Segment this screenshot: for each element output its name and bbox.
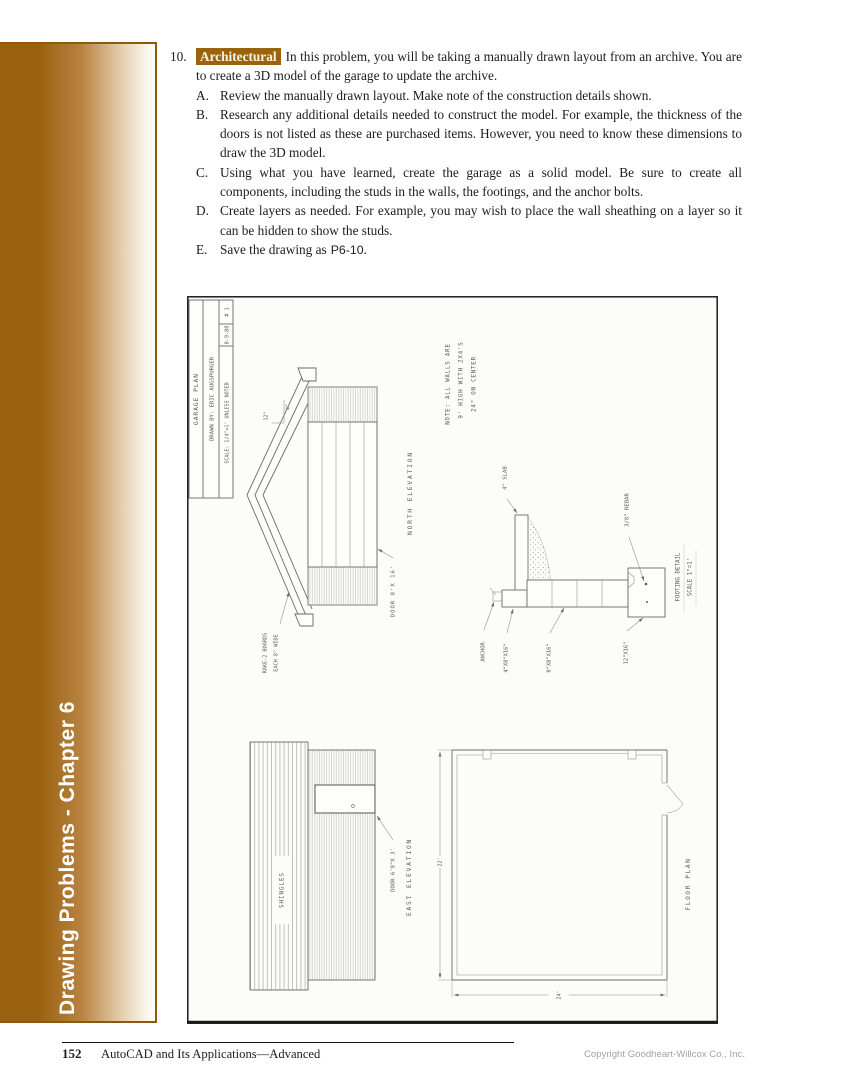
north-door-label: DOOR 8'X 16' xyxy=(391,565,397,617)
step-a: A. Review the manually drawn layout. Mak… xyxy=(196,86,742,105)
title-block-date: 8-9-88 xyxy=(225,326,231,345)
service-door-elevation xyxy=(315,785,375,813)
step-e-letter: E. xyxy=(196,240,220,260)
note-line1: NOTE: ALL WALLS ARE xyxy=(446,343,452,425)
sidebar-chapter-label: Drawing Problems - Chapter 6 xyxy=(56,685,80,1015)
footing-detail-scale: SCALE 1"=1' xyxy=(688,558,694,596)
title-block-scale: SCALE: 1/4"=1' UNLESS NOTED xyxy=(225,382,231,463)
floor-plan-dim-bottom: 24' xyxy=(557,990,563,999)
floor-plan-label: FLOOR PLAN xyxy=(685,858,692,911)
anchor-label: ANCHOR xyxy=(481,642,487,662)
garage-door-elevation xyxy=(308,422,377,567)
note-line2: 9' HIGH WITH 2X4'S xyxy=(459,341,465,418)
title-block-sheet: # 1 xyxy=(225,307,231,316)
shingles-label: SHINGLES xyxy=(280,872,286,908)
step-e-filename: P6-10 xyxy=(331,243,364,257)
step-c: C. Using what you have learned, create t… xyxy=(196,163,742,202)
east-elevation-label: EAST ELEVATION xyxy=(406,838,413,916)
step-e-text-before: Save the drawing as xyxy=(220,242,327,257)
pitch-rise-label: 4" xyxy=(286,404,292,410)
footing-size-label: 12"X16" xyxy=(624,642,630,665)
rake-label-line1: RAKE-2 BOARDS xyxy=(263,633,269,674)
problem-intro-row: 10. ArchitecturalIn this problem, you wi… xyxy=(170,47,742,86)
step-b-letter: B. xyxy=(196,105,220,163)
figure-garage-plan: GARAGE PLAN DRAWN BY: ERIC AUGSPURGER SC… xyxy=(187,296,718,1024)
title-block-project: GARAGE PLAN xyxy=(193,373,200,425)
problem-number: 10. xyxy=(170,47,196,86)
step-a-letter: A. xyxy=(196,86,220,105)
step-e-text: Save the drawing asP6-10. xyxy=(220,240,742,260)
architectural-badge: Architectural xyxy=(196,48,281,65)
footing-detail-title: FOOTING DETAIL xyxy=(676,552,682,601)
step-d-letter: D. xyxy=(196,201,220,240)
title-block: GARAGE PLAN DRAWN BY: ERIC AUGSPURGER SC… xyxy=(189,300,233,498)
note-line3: 24" ON CENTER xyxy=(472,356,478,412)
problem-intro: ArchitecturalIn this problem, you will b… xyxy=(196,47,742,86)
block-top-label: 4"X8"X16" xyxy=(504,643,510,672)
pitch-run-label: 12" xyxy=(264,411,270,420)
step-e: E. Save the drawing asP6-10. xyxy=(196,240,742,260)
slab-label: 4" SLAB xyxy=(503,466,509,490)
footer-copyright: Copyright Goodheart-Willcox Co., Inc. xyxy=(584,1049,745,1060)
step-b-text: Research any additional details needed t… xyxy=(220,105,742,163)
step-c-letter: C. xyxy=(196,163,220,202)
rake-label-line2: EACH 8" WIDE xyxy=(274,634,280,671)
textbook-page: { "colors": {"accent_brown": "#9a610e"},… xyxy=(0,0,849,1087)
floor-plan-dim-left: 22' xyxy=(438,857,444,866)
step-b: B. Research any additional details neede… xyxy=(196,105,742,163)
step-c-text: Using what you have learned, create the … xyxy=(220,163,742,202)
problem-10: 10. ArchitecturalIn this problem, you wi… xyxy=(170,47,742,260)
title-block-drawn-by: DRAWN BY: ERIC AUGSPURGER xyxy=(210,356,216,441)
north-elevation-label: NORTH ELEVATION xyxy=(407,451,414,535)
step-e-period: . xyxy=(364,242,367,257)
footer-book-title: AutoCAD and Its Applications—Advanced xyxy=(101,1047,320,1062)
footer-rule xyxy=(62,1042,514,1043)
east-door-label: DOOR 6'8"X 3' xyxy=(391,848,397,892)
step-a-text: Review the manually drawn layout. Make n… xyxy=(220,86,742,105)
problem-steps: A. Review the manually drawn layout. Mak… xyxy=(196,86,742,261)
footer-page-number: 152 xyxy=(62,1046,82,1062)
garage-plan-drawing: GARAGE PLAN DRAWN BY: ERIC AUGSPURGER SC… xyxy=(187,296,718,1024)
block-stem-label: 8"X8"X16" xyxy=(547,643,553,672)
step-d: D. Create layers as needed. For example,… xyxy=(196,201,742,240)
rebar-label: 3/8" REBAR xyxy=(625,493,631,527)
step-d-text: Create layers as needed. For example, yo… xyxy=(220,201,742,240)
